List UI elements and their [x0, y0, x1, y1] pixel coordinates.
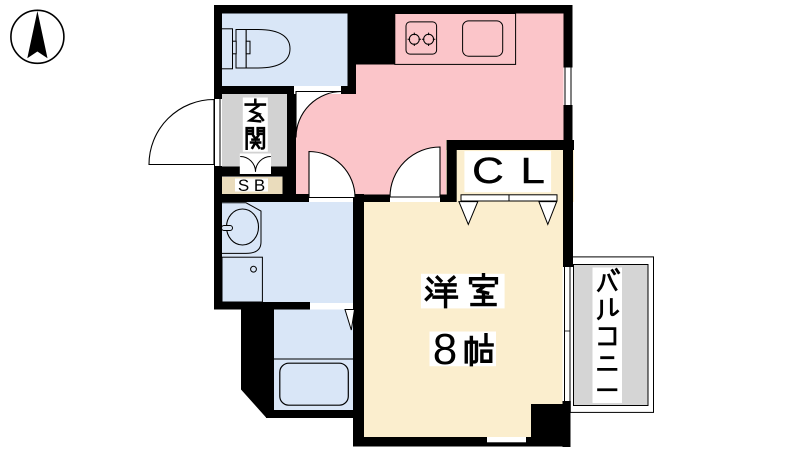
svg-text:C: C [472, 150, 504, 191]
svg-text:8: 8 [433, 325, 457, 374]
svg-text:L: L [521, 150, 545, 191]
svg-text:S: S [238, 176, 249, 195]
svg-text:B: B [254, 176, 265, 195]
